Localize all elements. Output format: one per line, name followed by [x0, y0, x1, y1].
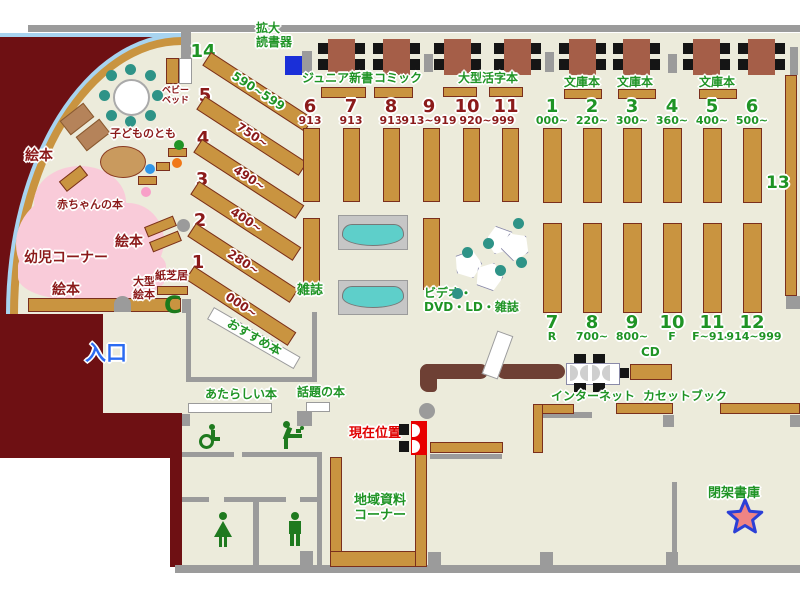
pillar-corridor — [182, 414, 190, 426]
wall-corridor-h1 — [186, 377, 317, 382]
wall-toilet-h2c — [300, 497, 317, 502]
shelf-13-num: 13 — [766, 174, 790, 194]
pillar-top-1 — [424, 54, 433, 72]
kids-cushion-blue — [145, 164, 155, 174]
pillar-semicircle — [114, 296, 131, 312]
av-stool-4 — [495, 265, 506, 276]
mid-shelf-6 — [303, 128, 320, 202]
entrance-label: 入口 — [85, 341, 127, 365]
internet-label: インターネット — [551, 390, 635, 404]
right-shelf-r1-1 — [543, 128, 562, 203]
junior-shinsho-label: ジュニア新書 — [302, 72, 373, 86]
man-icon — [287, 512, 303, 548]
cassette-shelf-2 — [616, 403, 673, 414]
kids-round-table — [113, 79, 150, 116]
public-phone-icon: C — [164, 291, 182, 319]
outside-area-left — [0, 305, 103, 460]
right-shelf-r1-3 — [623, 128, 642, 203]
current-location-label: 現在位置 — [349, 427, 401, 442]
internet-station — [566, 354, 630, 392]
pillar-shelf13 — [786, 296, 800, 309]
mid-shelf-7 — [343, 128, 360, 202]
new-books-label: あたらしい本 — [205, 388, 277, 402]
wall-toilet-vmid — [253, 500, 259, 566]
mid-shelf-8 — [383, 128, 400, 202]
wall-corridor-v2 — [312, 312, 317, 382]
service-counter-left — [420, 364, 488, 379]
kids-step-2 — [156, 162, 170, 171]
wall-toilet-right — [317, 452, 322, 566]
av-stool-6 — [516, 257, 527, 268]
marker-side-shelf — [430, 442, 503, 453]
service-counter-right — [497, 364, 565, 379]
cassette-shelf-L-v — [533, 404, 543, 453]
pillar-bottom-4 — [666, 552, 678, 565]
pillar-round-center — [419, 403, 435, 419]
toddler-corner-label: 幼児コーナー — [24, 250, 108, 266]
library-floor-map: 拡大読書器 ベビーベッド 14 590~599 5 750~ 4 490~ 3 … — [0, 0, 800, 600]
right-shelf-r1-2 — [583, 128, 602, 203]
magnifier-reader-device — [285, 56, 302, 75]
wall-corridor-v1 — [186, 312, 191, 380]
kids-stool-6 — [106, 110, 117, 121]
magazine-shelf — [303, 218, 320, 290]
study-table-7 — [683, 39, 730, 75]
pillar-top-2 — [545, 52, 554, 72]
baby-change-icon — [280, 421, 306, 451]
wall-toilet-h1a — [182, 452, 234, 457]
right-shelf-r1-5 — [703, 128, 722, 203]
local-corner-label: 地域資料コーナー — [354, 494, 406, 524]
cd-shelf — [630, 364, 672, 380]
kodomo-no-tomo-label: 子どものとも — [110, 128, 176, 141]
mid-shelf-11 — [502, 128, 519, 202]
mid-shelf-10 — [463, 128, 480, 202]
baby-books-label: 赤ちゃんの本 — [57, 199, 123, 212]
right-shelf-r1-4 — [663, 128, 682, 203]
av-stool-2 — [462, 247, 473, 258]
kids-stool-8 — [106, 70, 117, 81]
wall-toilet-h1b — [242, 452, 317, 457]
topic-books-shelf — [306, 402, 330, 412]
large-print-label: 大型活字本 — [458, 72, 518, 86]
wall-top — [28, 25, 800, 32]
magazine-rack-2 — [338, 280, 408, 315]
kids-cushion-pink — [141, 187, 151, 197]
cassette-label: カセットブック — [643, 390, 727, 404]
av-stool-1 — [452, 288, 463, 299]
study-table-4 — [494, 39, 541, 75]
right-shelf-r2-6 — [743, 223, 762, 313]
study-table-5 — [559, 39, 606, 75]
closed-stacks-star-icon — [726, 498, 764, 534]
av-shelf — [423, 218, 440, 290]
kids-cushion-green — [174, 140, 184, 150]
baby-bed-frame — [166, 58, 179, 84]
kids-stool-3 — [152, 90, 163, 101]
kids-cushion-orange — [172, 158, 182, 168]
right-shelf-r2-5 — [703, 223, 722, 313]
mid-shelf-9 — [423, 128, 440, 202]
pillar-phone — [182, 299, 191, 313]
woman-icon — [214, 512, 232, 548]
topic-books-label: 話題の本 — [297, 386, 345, 400]
kids-stool-5 — [125, 116, 136, 127]
magnifier-reader-label: 拡大読書器 — [256, 22, 292, 50]
study-table-2 — [373, 39, 420, 75]
right-shelf-r2-4 — [663, 223, 682, 313]
local-shelf-bottom — [330, 551, 427, 567]
outside-strip-toilet — [170, 455, 182, 567]
kids-stool-4 — [145, 110, 156, 121]
magazines-label: 雑誌 — [297, 284, 323, 299]
comic-label: コミック — [374, 72, 422, 86]
magazine-rack-1 — [338, 215, 408, 250]
pillar-top-3 — [668, 54, 677, 73]
right-shelf-r1-6 — [743, 128, 762, 203]
baby-bed-label: ベビーベッド — [162, 86, 189, 107]
cassette-shelf-3 — [720, 403, 800, 414]
right-shelf-r2-2 — [583, 223, 602, 313]
picture-books-label-2: 絵本 — [115, 234, 143, 250]
large-picture-books-label: 大型絵本 — [133, 276, 155, 301]
wall-right-top — [790, 47, 798, 75]
kids-stool-7 — [99, 90, 110, 101]
picture-books-label-1: 絵本 — [25, 148, 53, 164]
kids-step-3 — [138, 176, 157, 185]
wall-local-top — [430, 454, 502, 459]
pillar-cassette — [663, 415, 674, 427]
av-stool-3 — [483, 238, 494, 249]
mid-num-11: 11 — [489, 97, 523, 118]
wheelchair-icon — [197, 424, 225, 452]
outside-white-bottomleft — [0, 458, 170, 600]
kids-stool-2 — [145, 70, 156, 81]
picture-books-label-3: 絵本 — [52, 282, 80, 298]
kids-stage — [100, 146, 146, 178]
right-shelf-r2-1 — [543, 223, 562, 313]
new-books-shelf — [188, 403, 272, 413]
bunko-label-2: 文庫本 — [617, 76, 653, 90]
study-table-1 — [318, 39, 365, 75]
bunko-label-1: 文庫本 — [564, 76, 600, 90]
kids-stool-1 — [125, 64, 136, 75]
wall-bottom — [175, 565, 800, 573]
cd-label: CD — [641, 346, 660, 360]
study-table-8 — [738, 39, 785, 75]
wall-toilet-h2a — [182, 497, 209, 502]
outside-area-entrance — [103, 413, 182, 458]
pillar-bottom-3 — [540, 552, 553, 565]
local-shelf-right — [415, 452, 427, 567]
pillar-bottom-2 — [428, 552, 441, 565]
pillar-bottom-1 — [300, 551, 313, 565]
rt-range-6: 500~ — [720, 115, 784, 128]
av-stool-5 — [513, 218, 524, 229]
pillar-magnifier — [302, 51, 312, 73]
rb-range-12: 914~999 — [722, 331, 786, 344]
pillar-right-mid — [790, 415, 800, 427]
bunko-label-3: 文庫本 — [699, 76, 735, 90]
video-label: ビデオ・DVD・LD・雑誌 — [424, 287, 519, 315]
kamishibai-label: 紙芝居 — [155, 270, 188, 283]
right-shelf-r2-3 — [623, 223, 642, 313]
current-location-marker — [399, 419, 429, 457]
curve-bottom-shelf — [28, 298, 181, 312]
study-table-3 — [434, 39, 481, 75]
study-table-6 — [613, 39, 660, 75]
